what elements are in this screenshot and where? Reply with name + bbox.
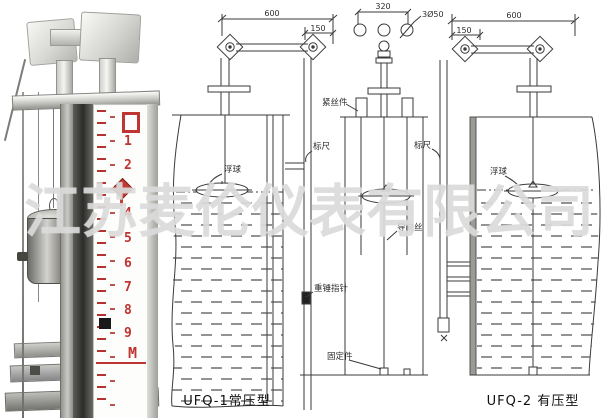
photo-hanging-wire [53,96,54,208]
photo-counterweight-nub [17,252,28,261]
ufq1-dim-width: 600 [264,9,279,18]
detail-dim-pitch: 320 [375,2,390,11]
photo-scale-number: 4 [124,206,132,221]
photo-scale-number: 9 [124,326,132,341]
detail-dim-holes: 3Ø50 [422,9,444,19]
photo-frame-slot [73,104,93,418]
ufq1-float [192,181,252,197]
photo-scale-unit: M [128,344,137,362]
detail-vessel [300,98,428,375]
photo-support-post-left [56,60,73,98]
photo-scale-number: 8 [124,303,132,318]
ufq2-label-scale: 标尺 [414,140,432,151]
photo-scale-baseline [96,362,146,364]
photo-scale-number: 2 [124,158,132,173]
ufq2-standpipe [517,58,551,117]
ufq2-scale-strip [438,60,472,341]
photo-float-indicator-stem [120,196,123,206]
photo-scale-number: 1 [124,134,132,149]
product-photo: 1 2 4 5 6 7 8 9 M [0,0,168,418]
ufq2-pulley-assembly [452,36,552,61]
ufq2-float-leader [505,176,519,186]
detail-top-view [354,9,421,38]
ufq1-label-scale: 标尺 [313,141,331,152]
detail-label-anchor: 固定件 [327,351,353,362]
detail-label-tensioner: 紧丝件 [322,97,348,108]
detail-sensor-head [368,41,400,117]
ufq2-dim-width: 600 [506,11,521,20]
ufq1-tank [170,115,290,407]
photo-level-pointer [99,318,111,329]
photo-scale-zero-mark [122,112,140,133]
ufq2-caption: UFQ-2 有压型 [487,394,580,409]
photo-scale-number: 6 [124,256,132,271]
ufq2-float [504,181,562,198]
screenshot-canvas: 600 150 [0,0,606,418]
detail-float [358,185,414,203]
ufq1-caption: UFQ-1常压型 [183,394,271,409]
ufq2-tank [470,117,600,375]
photo-scale-number: 5 [124,231,132,246]
ufq2-label-float: 浮球 [490,166,508,177]
ufq1-pulley-assembly [217,34,325,59]
ufq1-label-weight-pointer: 重锤指针 [314,283,349,294]
ufq2-drawing: 600 150 [414,11,600,409]
ufq1-weight-pointer [302,292,310,304]
photo-scale-number: 7 [124,280,132,295]
ufq1-label-float: 浮球 [224,164,242,175]
ufq2-dim-offset: 150 [456,26,471,35]
detail-guide-wire-leader [387,231,397,240]
photo-frame-channel-left [60,104,74,418]
detail-label-guide-wire: 导向丝 [397,222,423,233]
photo-frame-channel-right [147,104,158,418]
detail-anchor-leader [349,360,381,369]
photo-pulley-housing-right [79,11,141,63]
ufq1-dim-offset: 150 [310,24,325,33]
ufq1-drawing: 600 150 [170,9,349,410]
ufq1-scale-strip [285,58,311,410]
ufq2-scale-leader [432,149,440,160]
detail-drawing: 320 3Ø50 [300,2,444,375]
photo-rail-notch [30,366,40,375]
